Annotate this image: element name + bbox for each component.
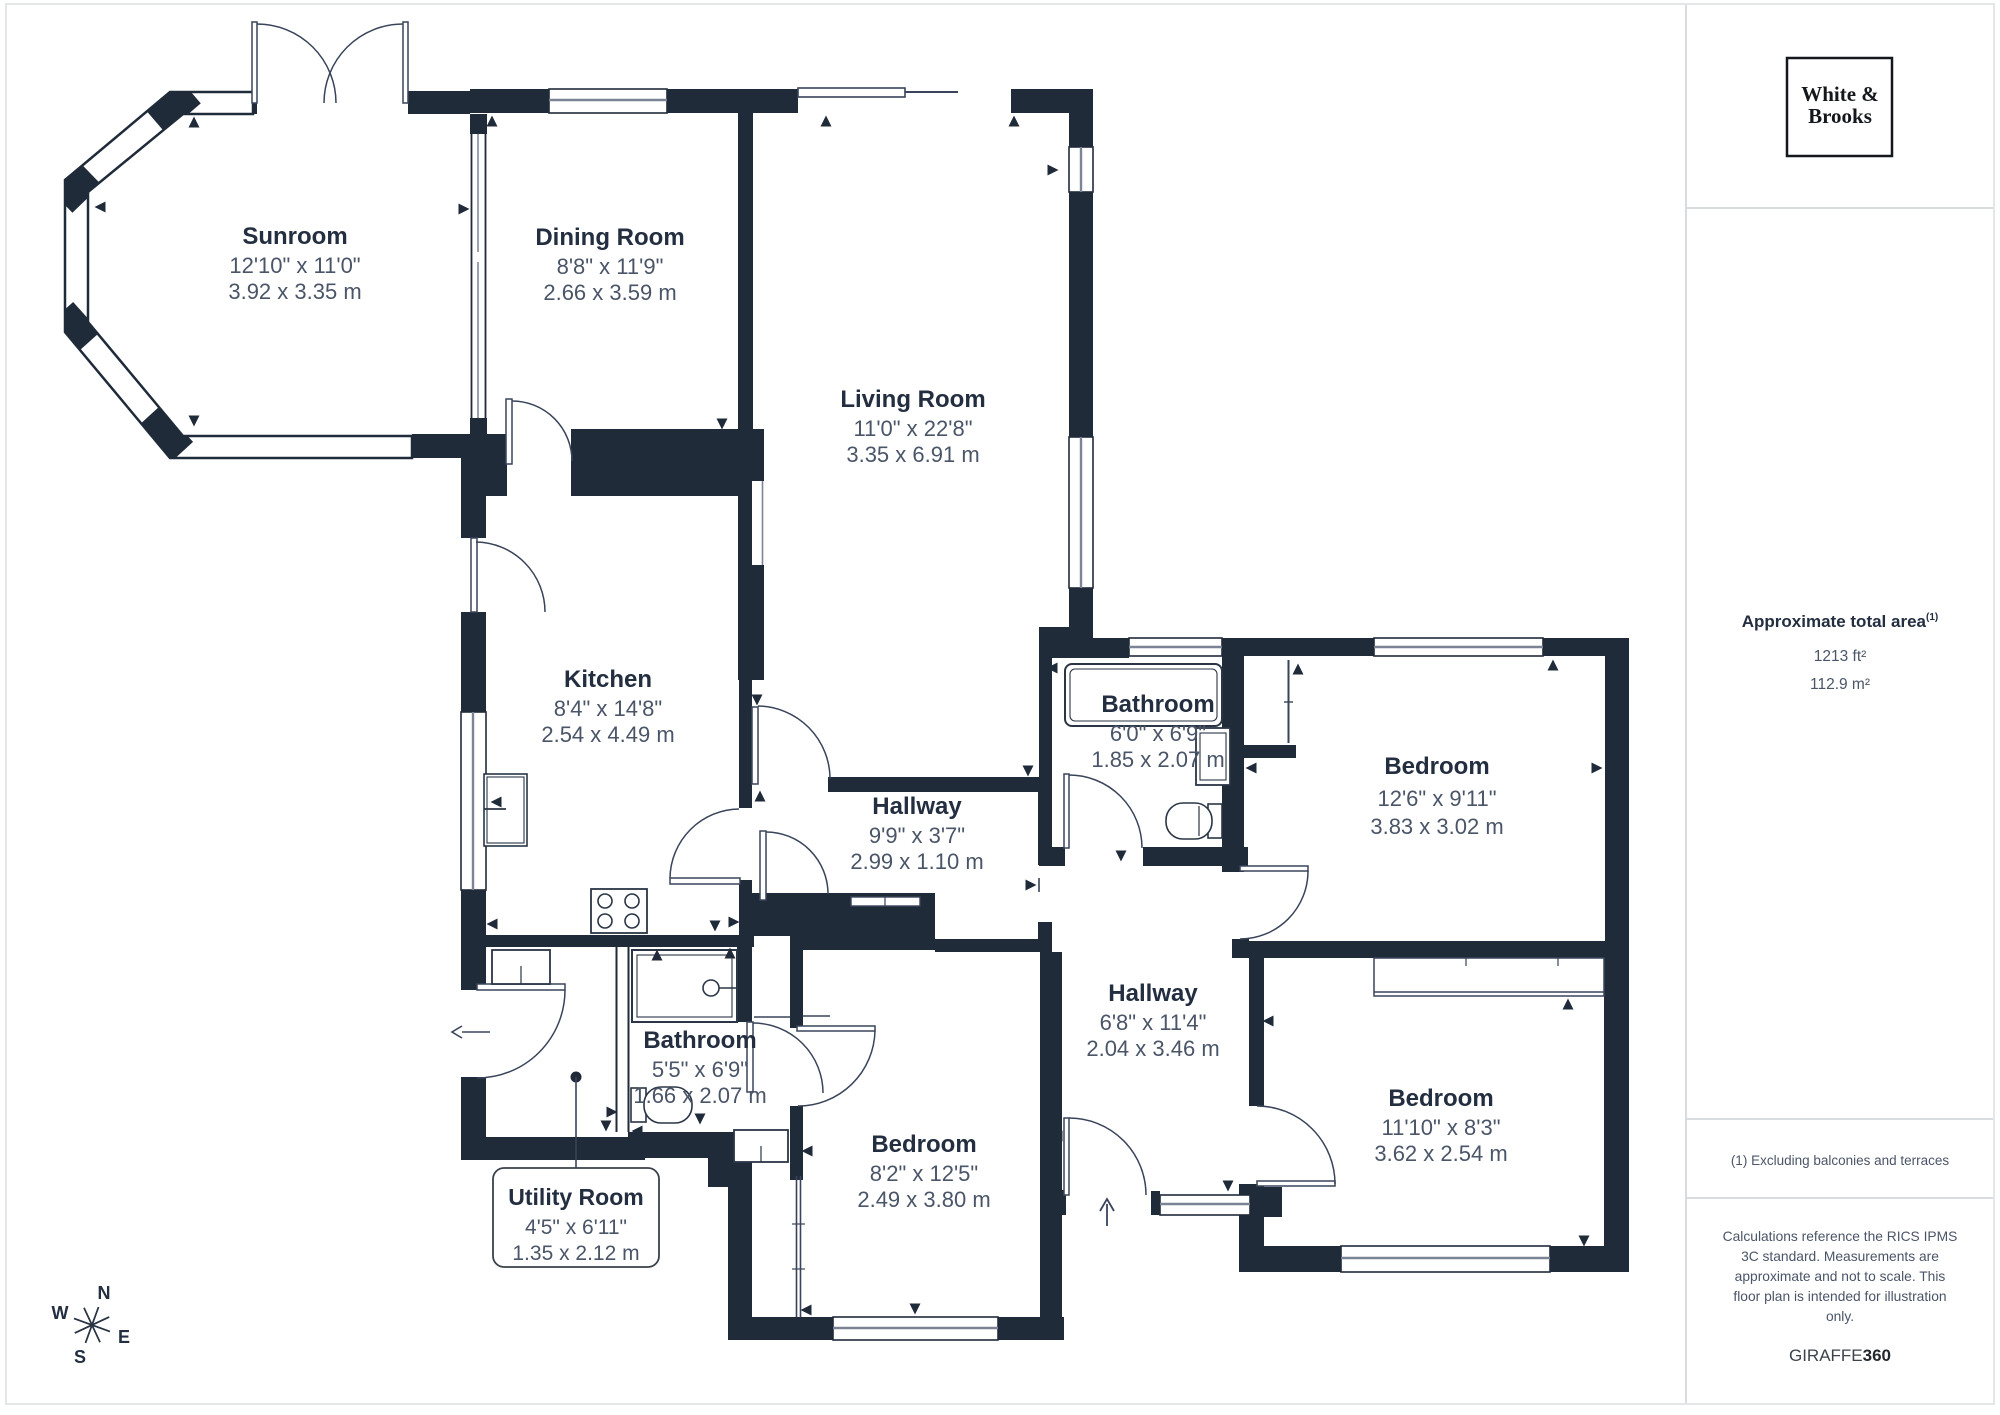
svg-text:Approximate total area(1): Approximate total area(1): [1742, 612, 1938, 631]
svg-text:2.04 x 3.46 m: 2.04 x 3.46 m: [1086, 1036, 1219, 1061]
svg-text:only.: only.: [1826, 1309, 1854, 1324]
svg-text:8'4" x 14'8": 8'4" x 14'8": [554, 696, 662, 721]
svg-text:Hallway: Hallway: [1108, 980, 1198, 1007]
svg-text:E: E: [118, 1327, 130, 1347]
svg-text:S: S: [74, 1347, 86, 1367]
svg-text:White &: White &: [1801, 82, 1879, 106]
svg-text:floor plan is intended for ill: floor plan is intended for illustration: [1733, 1289, 1946, 1304]
svg-text:2.54 x 4.49 m: 2.54 x 4.49 m: [541, 722, 674, 747]
svg-text:1.85 x 2.07 m: 1.85 x 2.07 m: [1091, 747, 1224, 772]
svg-text:11'0" x 22'8": 11'0" x 22'8": [853, 416, 972, 441]
svg-text:(1) Excluding balconies and te: (1) Excluding balconies and terraces: [1731, 1153, 1950, 1168]
svg-text:9'9" x 3'7": 9'9" x 3'7": [869, 823, 965, 848]
svg-text:5'5" x 6'9": 5'5" x 6'9": [652, 1057, 748, 1082]
svg-text:3.83 x 3.02 m: 3.83 x 3.02 m: [1370, 814, 1503, 839]
svg-text:12'6" x 9'11": 12'6" x 9'11": [1377, 786, 1496, 811]
svg-text:Dining Room: Dining Room: [535, 224, 684, 251]
svg-text:Sunroom: Sunroom: [242, 223, 347, 250]
svg-text:8'2" x 12'5": 8'2" x 12'5": [870, 1161, 978, 1186]
svg-text:6'8" x 11'4": 6'8" x 11'4": [1100, 1010, 1207, 1035]
svg-text:3.62 x 2.54 m: 3.62 x 2.54 m: [1374, 1141, 1507, 1166]
svg-text:Bedroom: Bedroom: [1384, 753, 1489, 780]
svg-text:Utility Room: Utility Room: [508, 1184, 643, 1210]
svg-text:1.35 x 2.12 m: 1.35 x 2.12 m: [512, 1242, 639, 1265]
svg-text:1213 ft²: 1213 ft²: [1814, 648, 1867, 665]
svg-text:Hallway: Hallway: [872, 793, 962, 820]
svg-text:4'5" x 6'11": 4'5" x 6'11": [525, 1216, 627, 1239]
svg-text:approximate and not to scale.: approximate and not to scale. This: [1735, 1269, 1946, 1284]
svg-text:12'10" x 11'0": 12'10" x 11'0": [229, 253, 360, 278]
svg-text:3.92 x 3.35 m: 3.92 x 3.35 m: [228, 279, 361, 304]
svg-text:8'8" x 11'9": 8'8" x 11'9": [557, 254, 664, 279]
svg-text:Bathroom: Bathroom: [643, 1027, 756, 1054]
svg-text:2.66 x 3.59 m: 2.66 x 3.59 m: [543, 280, 676, 305]
svg-text:Bathroom: Bathroom: [1101, 691, 1214, 718]
svg-text:Kitchen: Kitchen: [564, 666, 652, 693]
svg-text:Bedroom: Bedroom: [871, 1131, 976, 1158]
svg-text:Brooks: Brooks: [1808, 104, 1872, 128]
svg-text:3.35 x 6.91 m: 3.35 x 6.91 m: [846, 442, 979, 467]
svg-text:112.9 m²: 112.9 m²: [1810, 676, 1870, 693]
svg-text:3C standard. Measurements are: 3C standard. Measurements are: [1741, 1249, 1939, 1264]
svg-text:11'10" x 8'3": 11'10" x 8'3": [1381, 1115, 1500, 1140]
svg-text:N: N: [98, 1283, 111, 1303]
svg-text:Calculations reference the RIC: Calculations reference the RICS IPMS: [1723, 1229, 1958, 1244]
svg-text:6'0" x 6'9": 6'0" x 6'9": [1110, 721, 1206, 746]
svg-text:W: W: [52, 1303, 69, 1323]
svg-text:GIRAFFE360: GIRAFFE360: [1789, 1346, 1891, 1365]
svg-text:2.99 x 1.10 m: 2.99 x 1.10 m: [850, 849, 983, 874]
svg-text:Bedroom: Bedroom: [1388, 1085, 1493, 1112]
svg-text:Living Room: Living Room: [840, 386, 985, 413]
svg-text:2.49 x 3.80 m: 2.49 x 3.80 m: [857, 1187, 990, 1212]
svg-text:1.66 x 2.07 m: 1.66 x 2.07 m: [633, 1083, 766, 1108]
